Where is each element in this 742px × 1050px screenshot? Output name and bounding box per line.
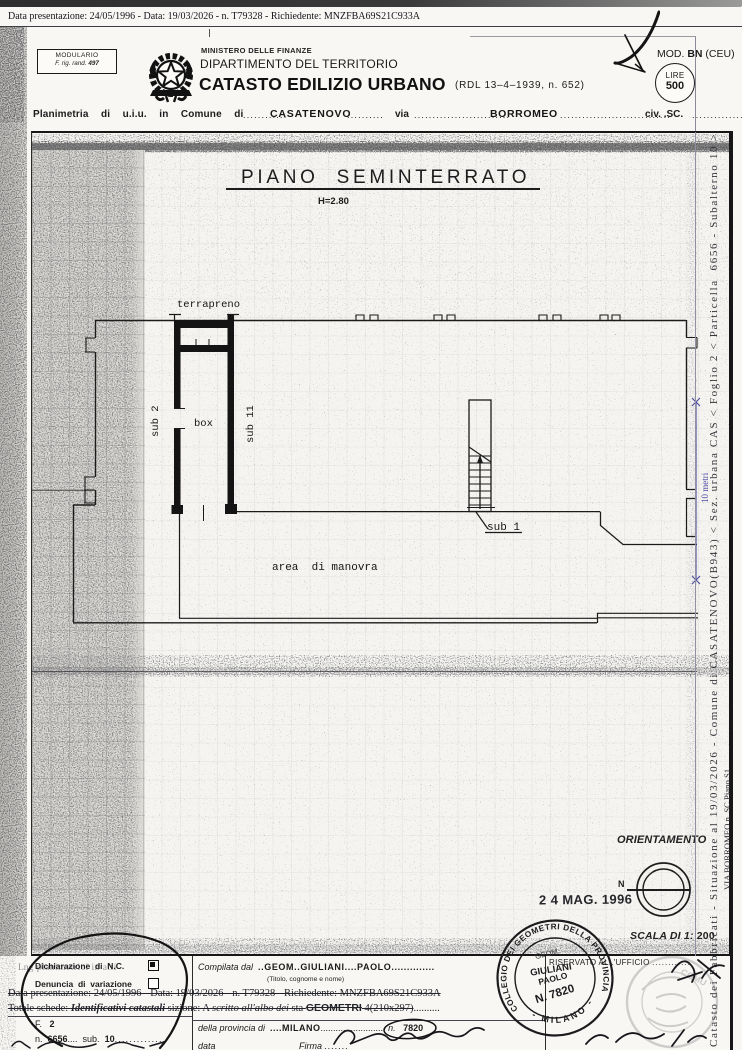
svg-text:area di manovra: area di manovra [272,562,378,574]
svg-text:N: N [618,879,625,889]
svg-text:box: box [194,418,213,430]
svg-text:sub 2: sub 2 [150,405,162,437]
svg-text:terrapreno: terrapreno [177,299,240,311]
svg-text:GEOM.: GEOM. [534,946,560,961]
svg-text:sub 11: sub 11 [245,405,257,443]
